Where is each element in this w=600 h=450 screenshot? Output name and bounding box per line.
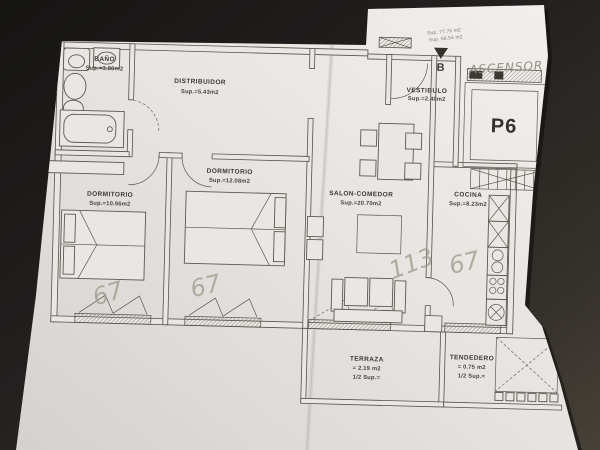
label-terraza-sup2: 1/2 Sup.= [353,375,381,382]
pillow [274,198,286,228]
bed-dormitorio2 [184,191,286,266]
floorplan-svg: BAÑO Sup.=3.80m2 DISTRIBUIDOR Sup.=5.43m… [0,0,600,450]
label-vestibulo-sup: Sup.=2.40m2 [408,96,446,103]
label-block-letter: B [436,62,444,74]
label-tendedero-sup2: 1/2 Sup.= [458,373,486,380]
label-distribuidor: DISTRIBUIDOR [174,78,226,86]
chair [360,130,376,146]
label-cocina-sup: Sup.=8.23m2 [449,201,487,208]
chair [360,160,376,176]
stove [486,275,507,300]
pillow [273,232,285,262]
wardrobe [44,160,124,174]
label-cocina: COCINA [454,191,482,199]
label-tendedero: TENDEDERO [450,354,495,362]
label-dormitorio1-sup: Sup.=10.96m2 [89,201,130,208]
kitchen-sink [487,247,508,276]
label-salon-sup: Sup.=20.70m2 [340,200,381,207]
kitchen-counter [486,195,509,325]
label-vestibulo: VESTIBULO [406,87,447,95]
pillow [63,246,75,274]
label-dormitorio2-sup: Sup.=12.08m2 [209,178,250,185]
chair [405,133,421,149]
bidet [64,73,87,100]
label-tendedero-sup1: = 0.75 m2 [458,364,486,371]
label-elevator-unit: P6 [490,115,517,138]
label-terraza-sup1: = 2.19 m2 [353,366,381,373]
photo-of-floorplan: BAÑO Sup.=3.80m2 DISTRIBUIDOR Sup.=5.43m… [0,0,600,450]
label-dormitorio2: DORMITORIO [207,168,253,176]
cabinet [306,239,323,259]
pillow [64,214,76,242]
cabinet [307,216,324,236]
label-terraza: TERRAZA [350,356,384,364]
label-distribuidor-sup: Sup.=5.43m2 [181,89,219,96]
chair [405,163,421,179]
label-bano-sup: Sup.=3.80m2 [85,66,123,73]
label-dormitorio1: DORMITORIO [87,191,133,199]
